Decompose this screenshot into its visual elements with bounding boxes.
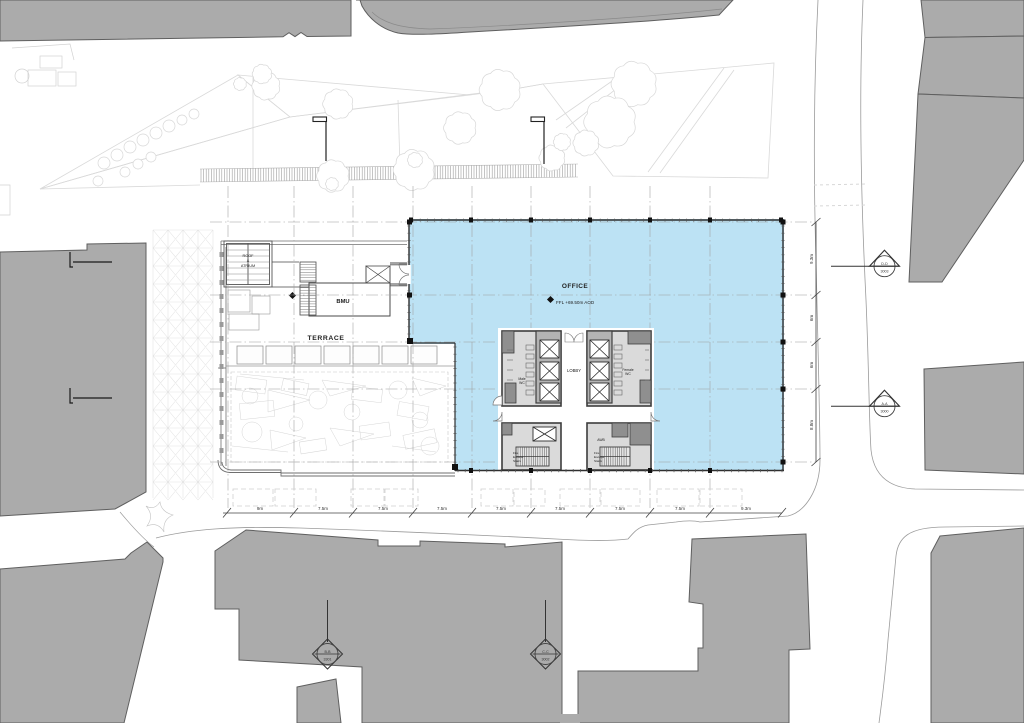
svg-text:7.5m: 7.5m <box>675 506 685 511</box>
svg-text:7.5m: 7.5m <box>378 506 388 511</box>
svg-text:A-A: A-A <box>882 402 889 406</box>
svg-text:7.5m: 7.5m <box>615 506 625 511</box>
svg-text:3301: 3301 <box>324 658 332 662</box>
svg-text:7.5m: 7.5m <box>496 506 506 511</box>
svg-text:6m: 6m <box>809 315 814 322</box>
svg-text:Stairs: Stairs <box>594 459 602 463</box>
svg-text:FFL +69.50m AOD: FFL +69.50m AOD <box>556 300 595 305</box>
svg-text:9.3m: 9.3m <box>741 506 751 511</box>
svg-text:3003: 3003 <box>881 270 889 274</box>
svg-text:C-C: C-C <box>542 650 549 654</box>
svg-text:9m: 9m <box>257 506 264 511</box>
svg-text:8.8m: 8.8m <box>809 420 814 430</box>
svg-text:AWB: AWB <box>597 438 605 442</box>
svg-text:Stairs: Stairs <box>513 459 521 463</box>
svg-text:ATRIUM: ATRIUM <box>241 264 255 268</box>
svg-text:3000: 3000 <box>881 410 889 414</box>
svg-text:7.5m: 7.5m <box>437 506 447 511</box>
svg-text:D-D: D-D <box>881 262 888 266</box>
svg-text:B-B: B-B <box>325 650 332 654</box>
svg-text:&: & <box>247 259 250 263</box>
svg-text:3002: 3002 <box>542 658 550 662</box>
svg-text:9.3m: 9.3m <box>809 254 814 264</box>
svg-text:TERRACE: TERRACE <box>307 335 344 342</box>
svg-text:WC: WC <box>519 381 525 385</box>
svg-text:WC: WC <box>625 372 631 376</box>
svg-text:ROOF: ROOF <box>243 254 255 258</box>
svg-text:BMU: BMU <box>336 299 349 305</box>
svg-text:7.5m: 7.5m <box>318 506 328 511</box>
svg-text:6m: 6m <box>809 362 814 369</box>
svg-text:OFFICE: OFFICE <box>562 283 588 290</box>
svg-text:LOBBY: LOBBY <box>567 368 581 373</box>
svg-text:7.5m: 7.5m <box>555 506 565 511</box>
